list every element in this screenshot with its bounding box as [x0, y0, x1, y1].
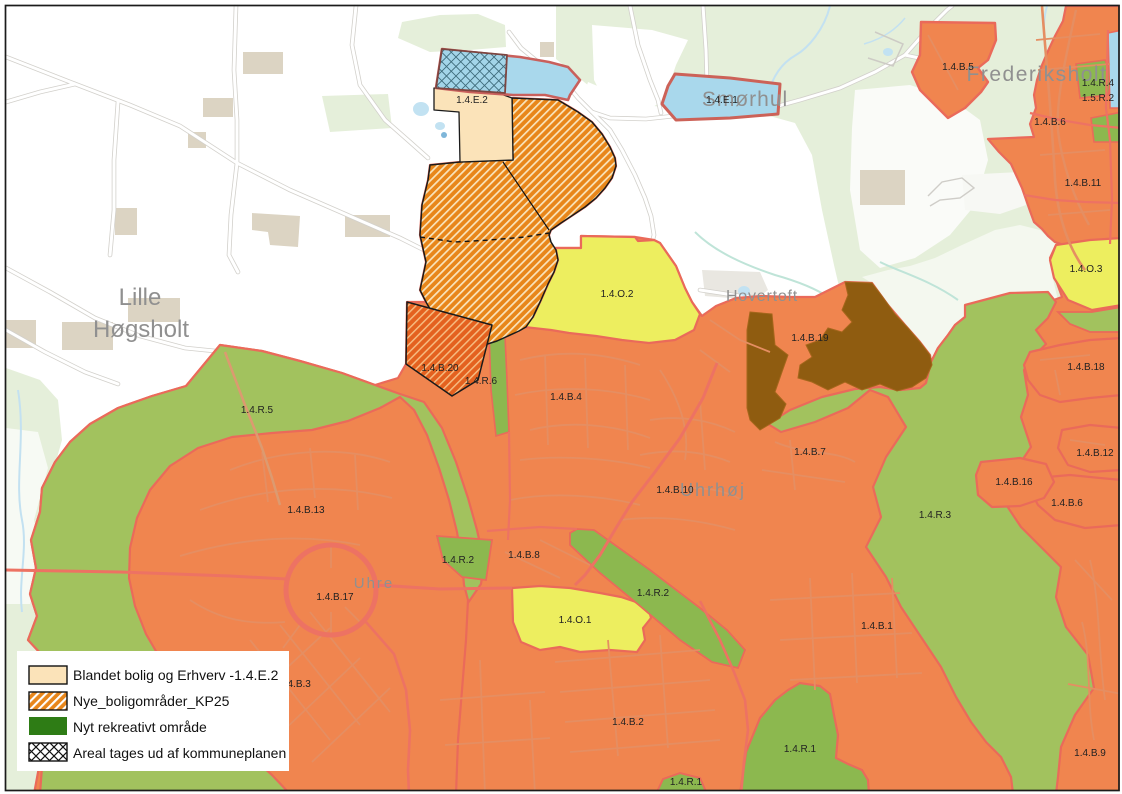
svg-text:1.4.B.20: 1.4.B.20 — [421, 363, 459, 374]
svg-text:1.4.B.16: 1.4.B.16 — [995, 477, 1033, 488]
svg-text:1.4.B.9: 1.4.B.9 — [1074, 748, 1106, 759]
svg-text:1.4.R.2: 1.4.R.2 — [442, 555, 475, 566]
svg-text:1.4.B.10: 1.4.B.10 — [656, 485, 694, 496]
svg-text:1.4.R.2: 1.4.R.2 — [637, 588, 670, 599]
svg-text:1.4.E.1: 1.4.E.1 — [706, 95, 738, 106]
svg-text:1.4.B.7: 1.4.B.7 — [794, 447, 826, 458]
svg-text:1.4.R.3: 1.4.R.3 — [919, 510, 952, 521]
svg-text:1.4.B.11: 1.4.B.11 — [1065, 178, 1102, 189]
svg-text:Nye_boligområder_KP25: Nye_boligområder_KP25 — [73, 693, 230, 709]
svg-text:Lille: Lille — [119, 284, 162, 311]
svg-text:1.4.O.2: 1.4.O.2 — [601, 289, 634, 300]
svg-text:1.4.B.6: 1.4.B.6 — [1034, 117, 1066, 128]
svg-text:1.4.B.1: 1.4.B.1 — [861, 621, 893, 632]
svg-text:1.5.R.2: 1.5.R.2 — [1082, 93, 1115, 104]
svg-text:1.4.O.1: 1.4.O.1 — [559, 615, 592, 626]
svg-text:1.4.R.1: 1.4.R.1 — [784, 744, 817, 755]
svg-text:1.4.B.17: 1.4.B.17 — [316, 592, 354, 603]
svg-text:1.4.B.4: 1.4.B.4 — [550, 392, 582, 403]
svg-text:Blandet bolig og Erhverv -1.4.: Blandet bolig og Erhverv -1.4.E.2 — [73, 667, 279, 683]
svg-text:1.4.B.12: 1.4.B.12 — [1076, 448, 1114, 459]
svg-text:1.4.B.19: 1.4.B.19 — [791, 333, 829, 344]
svg-text:1.4.B.2: 1.4.B.2 — [612, 717, 644, 728]
svg-text:1.4.B.13: 1.4.B.13 — [287, 505, 325, 516]
svg-text:1.4.B.6: 1.4.B.6 — [1051, 498, 1083, 509]
svg-text:1.4.R.6: 1.4.R.6 — [465, 376, 498, 387]
svg-text:1.4.O.3: 1.4.O.3 — [1070, 264, 1103, 275]
svg-text:Høgsholt: Høgsholt — [93, 316, 189, 343]
svg-text:Nyt rekreativt område: Nyt rekreativt område — [73, 719, 207, 735]
svg-text:Uhre: Uhre — [354, 575, 395, 592]
svg-text:Hovertoft: Hovertoft — [726, 288, 798, 305]
svg-text:1.4.B.18: 1.4.B.18 — [1067, 362, 1105, 373]
svg-text:1.4.E.2: 1.4.E.2 — [456, 95, 488, 106]
svg-text:1.4.B.5: 1.4.B.5 — [942, 62, 974, 73]
svg-text:1.4.R.5: 1.4.R.5 — [241, 405, 274, 416]
svg-text:1.4.B.8: 1.4.B.8 — [508, 550, 540, 561]
svg-text:1.4.R.1: 1.4.R.1 — [670, 777, 703, 788]
svg-text:Areal tages ud af kommuneplane: Areal tages ud af kommuneplanen — [73, 745, 286, 761]
svg-text:1.4.R.4: 1.4.R.4 — [1082, 78, 1115, 89]
